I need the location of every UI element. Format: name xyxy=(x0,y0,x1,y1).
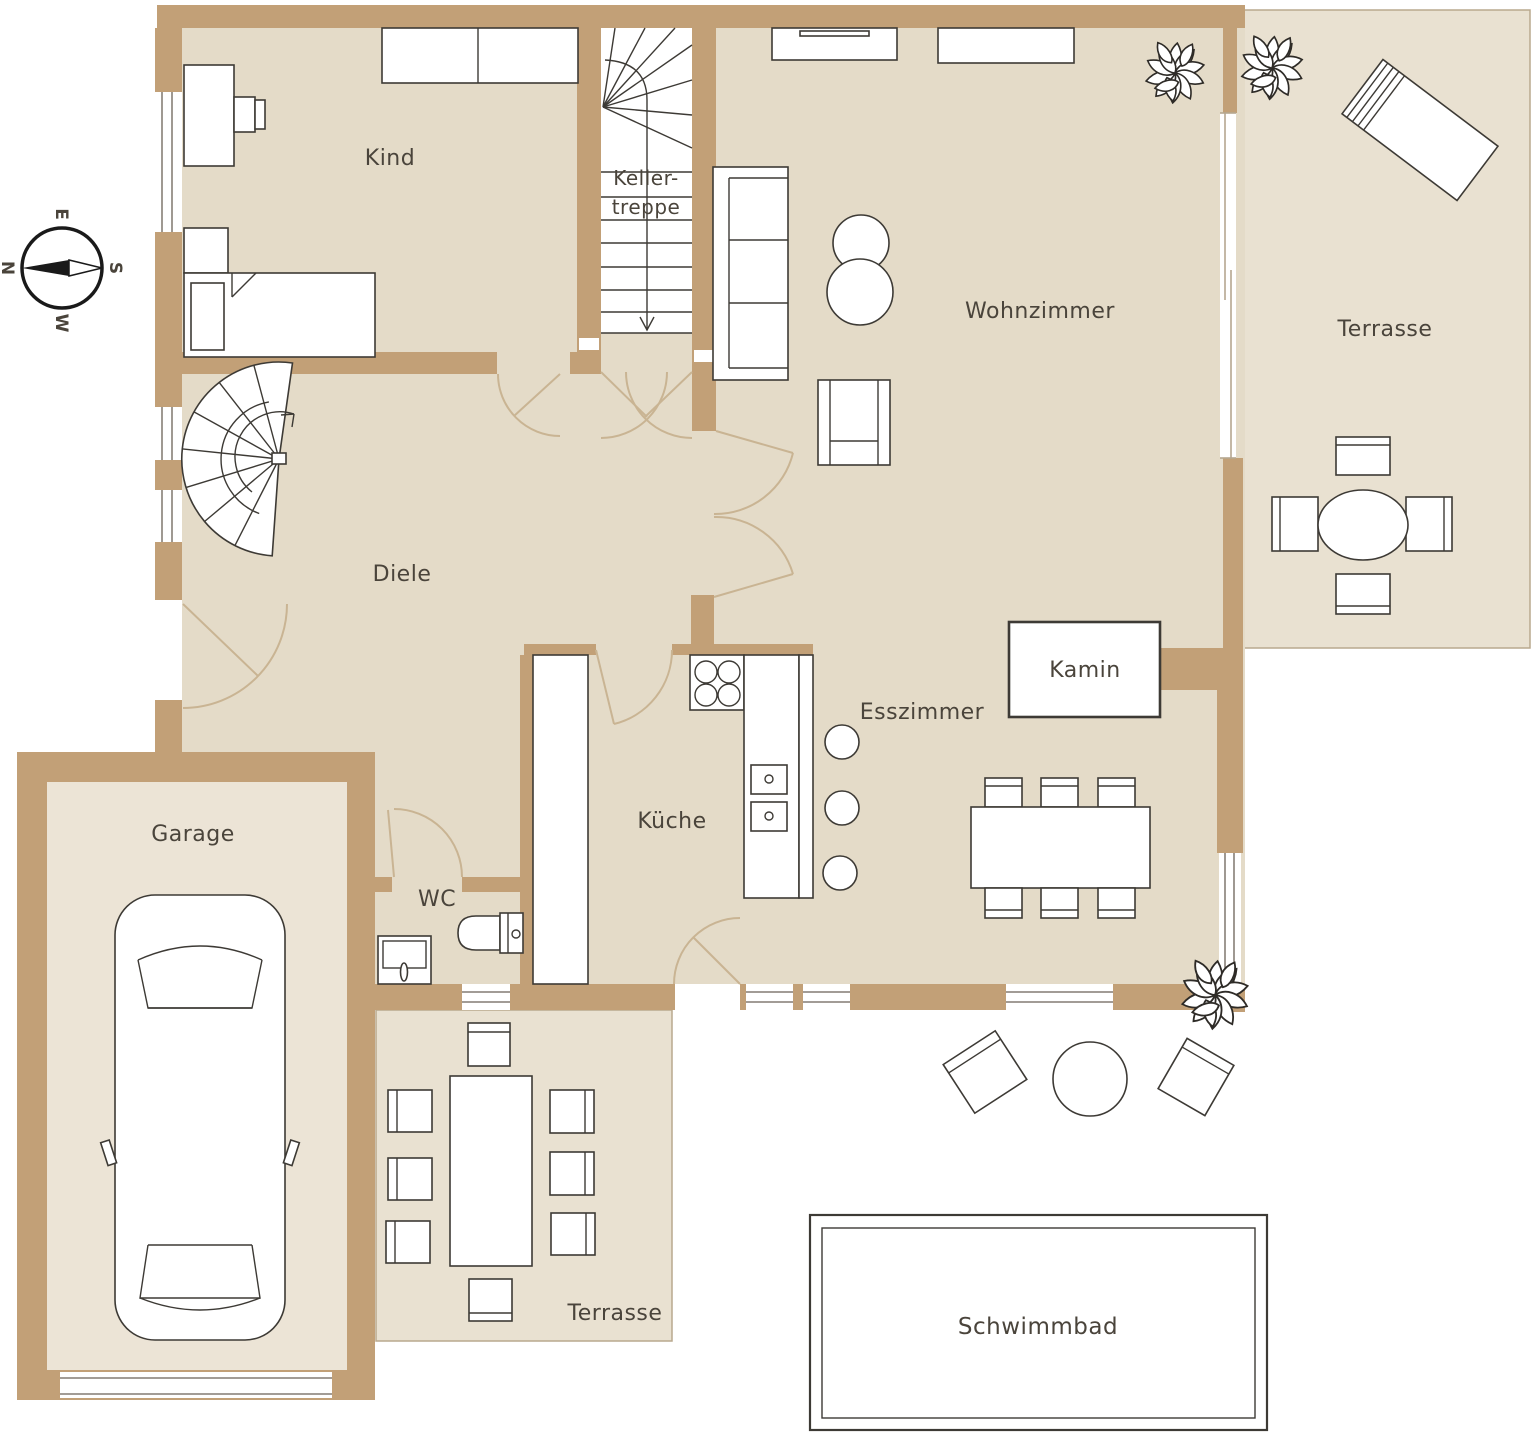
car xyxy=(101,895,300,1340)
patio-chair xyxy=(551,1213,595,1255)
kitchen-island xyxy=(744,655,813,898)
bar-stool xyxy=(825,725,859,759)
bed xyxy=(184,273,375,357)
terrace-chair xyxy=(1336,437,1390,475)
toilet xyxy=(458,913,523,953)
label-kueche: Küche xyxy=(637,809,706,834)
patio-chair xyxy=(388,1090,432,1132)
label-wohnzimmer: Wohnzimmer xyxy=(965,299,1115,324)
garden-table xyxy=(1053,1042,1127,1116)
sofa xyxy=(713,167,788,380)
window xyxy=(803,984,850,1010)
dining-table xyxy=(971,807,1150,888)
floor-plan-canvas: N E S W Kind Keller- treppe Wohnzimmer T… xyxy=(0,0,1538,1440)
tv xyxy=(800,31,869,36)
label-kellertreppe-2: treppe xyxy=(612,195,681,219)
garden-chair xyxy=(943,1031,1027,1113)
compass-south: S xyxy=(105,262,125,274)
bar-stool xyxy=(825,791,859,825)
garden-seating xyxy=(943,1031,1234,1116)
armchair xyxy=(818,380,890,465)
kitchen-counter xyxy=(533,655,588,984)
window xyxy=(153,490,182,542)
label-wc: WC xyxy=(418,887,456,912)
dining-chair xyxy=(985,778,1022,807)
entrance-opening xyxy=(153,600,182,700)
dining-chair xyxy=(1041,778,1078,807)
patio-chair xyxy=(550,1152,594,1195)
label-kellertreppe-1: Keller- xyxy=(613,166,679,190)
pillow xyxy=(191,283,224,350)
patio-table xyxy=(450,1076,532,1266)
sideboard xyxy=(938,28,1074,63)
patio-chair xyxy=(550,1090,594,1133)
bar-stool xyxy=(823,856,857,890)
terrace-chair xyxy=(1406,497,1452,551)
compass-north: N xyxy=(0,261,17,275)
label-esszimmer: Esszimmer xyxy=(860,700,985,725)
label-terrasse-sued: Terrasse xyxy=(567,1301,663,1326)
terrace-chair xyxy=(1336,574,1390,614)
label-schwimmbad: Schwimmbad xyxy=(958,1314,1118,1340)
wardrobe xyxy=(382,28,578,83)
desk-chair xyxy=(234,97,255,132)
bar-counter xyxy=(799,655,813,898)
window xyxy=(462,984,510,1010)
compass-east: E xyxy=(51,208,71,220)
dining-chair xyxy=(985,888,1022,918)
desk xyxy=(184,65,234,166)
nightstand xyxy=(184,228,228,273)
coffee-table-large xyxy=(827,259,893,325)
label-kind: Kind xyxy=(365,146,415,171)
dining-chair xyxy=(1041,888,1078,918)
label-diele: Diele xyxy=(373,562,432,587)
patio-chair xyxy=(388,1158,432,1200)
window xyxy=(746,984,793,1010)
dining-chair xyxy=(1098,778,1135,807)
patio-chair xyxy=(386,1221,430,1263)
window xyxy=(153,160,182,232)
window xyxy=(1006,984,1113,1010)
glass-sliding-door xyxy=(1220,113,1236,458)
patio-chair xyxy=(469,1279,512,1321)
terrace-chair xyxy=(1272,497,1318,551)
compass-west: W xyxy=(51,314,71,333)
window xyxy=(153,407,182,460)
floor-plan: N E S W Kind Keller- treppe Wohnzimmer T… xyxy=(0,0,1538,1440)
garden-chair xyxy=(1158,1038,1234,1115)
label-kamin: Kamin xyxy=(1049,658,1121,683)
cooktop xyxy=(690,655,744,710)
window xyxy=(153,92,182,160)
patio-chair xyxy=(468,1023,510,1066)
washbasin xyxy=(378,936,431,984)
terrace-table xyxy=(1318,490,1408,560)
dining-chair xyxy=(1098,888,1135,918)
label-garage: Garage xyxy=(151,822,235,847)
label-terrasse-ost: Terrasse xyxy=(1337,317,1433,342)
compass-icon: N E S W xyxy=(0,208,125,332)
